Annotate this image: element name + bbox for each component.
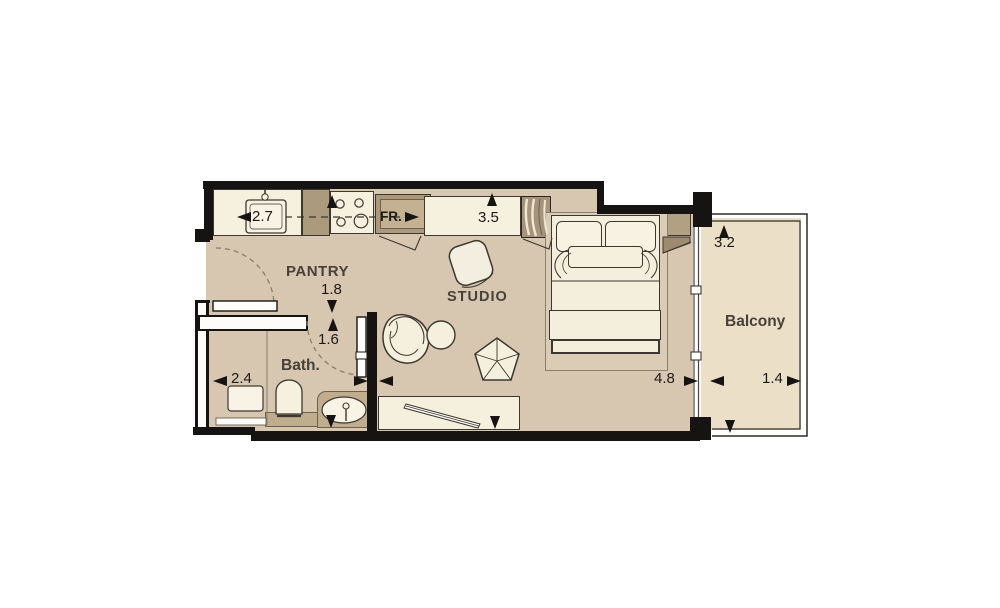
bath-door-hinge bbox=[356, 352, 367, 359]
balcony-label: Balcony bbox=[725, 313, 785, 331]
fridge-label: FR. bbox=[380, 209, 402, 224]
dim-arrow-studio-depth-top bbox=[487, 193, 497, 206]
wardrobe-door-flap bbox=[523, 238, 552, 249]
fridge-door-flap bbox=[379, 236, 421, 250]
dim-kitchen-run: 2.7 bbox=[252, 208, 273, 225]
dim-arrow-kitchen-right bbox=[405, 212, 419, 222]
dim-balcony-depth: 3.2 bbox=[714, 234, 735, 251]
stove-burner-4 bbox=[354, 214, 368, 228]
sliding-door-joint-upper bbox=[691, 286, 701, 294]
dim-pantry-depth: 1.8 bbox=[321, 281, 342, 298]
studio-label: STUDIO bbox=[447, 289, 508, 305]
dim-balcony-width: 1.4 bbox=[762, 370, 783, 387]
dim-arrow-pantry-top bbox=[327, 195, 337, 208]
dim-arrow-balcony-depth-bottom bbox=[725, 420, 735, 433]
duvet-fold-left-inner bbox=[563, 253, 571, 274]
stove-burner-2 bbox=[355, 199, 363, 207]
dim-arrow-bath-width-left bbox=[213, 376, 227, 386]
stove-burner-3 bbox=[337, 218, 345, 226]
dim-arrow-kitchen-left bbox=[237, 212, 251, 222]
side-table bbox=[427, 321, 455, 349]
dim-arrow-studio-width-left bbox=[379, 376, 393, 386]
wardrobe-clothes-stroke-4 bbox=[544, 200, 547, 234]
duvet-fold-left bbox=[555, 250, 568, 278]
entry-door-swing-arc bbox=[216, 248, 274, 306]
tv-screen-line bbox=[406, 406, 479, 426]
kitchen-faucet-icon bbox=[262, 194, 268, 200]
dim-arrow-pantry-bottom bbox=[327, 300, 337, 313]
dim-arrow-balcony-width-left bbox=[710, 376, 724, 386]
dim-studio-depth: 3.5 bbox=[478, 209, 499, 226]
entry-door-leaf bbox=[213, 301, 277, 311]
dim-arrow-studio-width-right bbox=[684, 376, 698, 386]
floorplan-canvas: PANTRY STUDIO Bath. Balcony FR. 2.7 3.5 … bbox=[0, 0, 1000, 608]
sliding-door-joint-lower bbox=[691, 352, 701, 360]
dim-studio-width: 4.8 bbox=[654, 370, 675, 387]
wardrobe-clothes-stroke-1 bbox=[526, 199, 529, 235]
shower-tray bbox=[228, 386, 263, 411]
bath-door-leaf bbox=[357, 317, 366, 377]
occasional-chair-seat bbox=[447, 238, 496, 288]
duvet-fold-right bbox=[644, 250, 657, 278]
wardrobe-clothes-stroke-3 bbox=[539, 199, 542, 235]
dim-arrow-balcony-width-right bbox=[787, 376, 801, 386]
wardrobe-right-door-flap bbox=[663, 237, 690, 253]
vanity-faucet bbox=[343, 403, 349, 409]
dim-arrow-studio-depth-bottom bbox=[490, 416, 500, 429]
stove-burner-1 bbox=[336, 200, 344, 208]
pantry-label: PANTRY bbox=[286, 263, 349, 280]
dim-bath-width: 2.4 bbox=[231, 370, 252, 387]
bath-label: Bath. bbox=[281, 357, 320, 375]
wardrobe-clothes-stroke-2 bbox=[532, 199, 536, 236]
occasional-chair bbox=[447, 238, 496, 291]
toilet bbox=[276, 380, 302, 414]
dim-arrow-bath-depth-top bbox=[328, 318, 338, 331]
shower-threshold bbox=[216, 418, 266, 425]
dim-bath-depth: 1.6 bbox=[318, 331, 339, 348]
duvet-fold-right-inner bbox=[641, 253, 649, 274]
